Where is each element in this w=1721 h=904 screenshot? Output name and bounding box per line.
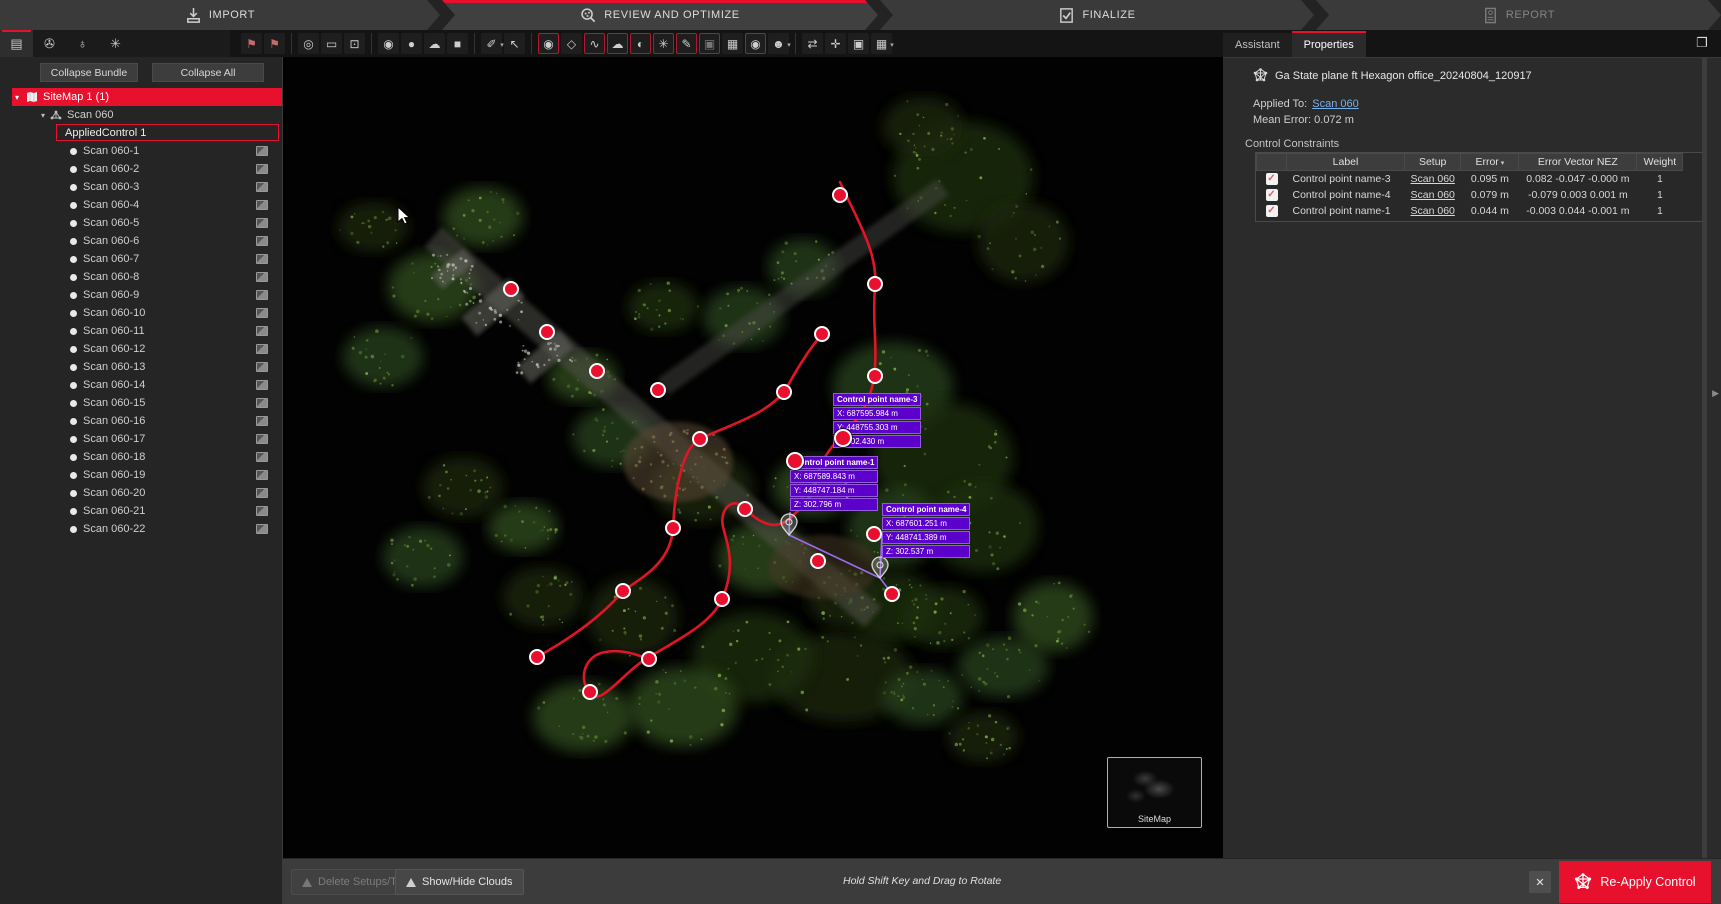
- tree-item-scan[interactable]: Scan 060-9: [12, 286, 282, 304]
- scan-image-icon[interactable]: [256, 524, 268, 534]
- scan-bullet-icon: [70, 328, 77, 335]
- tree-item-label: Scan 060-10: [83, 307, 145, 319]
- constraint-weight: 1: [1637, 187, 1683, 203]
- sitemap-open-icon[interactable]: ⚑: [264, 33, 285, 54]
- tree-item-scan[interactable]: Scan 060-16: [12, 412, 282, 430]
- show-hide-clouds-button[interactable]: Show/Hide Clouds: [395, 869, 524, 895]
- workflow-step-review-optimize[interactable]: REVIEW AND OPTIMIZE: [442, 0, 878, 30]
- zoom-window-icon[interactable]: ⊡: [344, 33, 365, 54]
- constraint-vector: 0.082 -0.047 -0.000 m: [1519, 171, 1637, 187]
- tree-item-label: Scan 060-22: [83, 523, 145, 535]
- scan-bullet-icon: [70, 148, 77, 155]
- rotate-hint-text: Hold Shift Key and Drag to Rotate: [843, 875, 1001, 887]
- control-point-marker: [642, 652, 656, 666]
- dropdown-caret-icon[interactable]: ▾: [887, 41, 897, 49]
- tree-item-scan[interactable]: Scan 060-19: [12, 466, 282, 484]
- tree-item-label: Scan 060-18: [83, 451, 145, 463]
- column-header[interactable]: Weight: [1637, 154, 1683, 171]
- tree-item-scan[interactable]: Scan 060-17: [12, 430, 282, 448]
- control-point-marker: [867, 527, 881, 541]
- tree-item-label: Scan 060-5: [83, 217, 139, 229]
- applied-to-row: Applied To:Scan 060: [1253, 98, 1359, 110]
- control-point-marker[interactable]: [834, 429, 852, 447]
- sitemap-thumbnail[interactable]: SiteMap: [1107, 757, 1202, 828]
- application-window: IMPORT REVIEW AND OPTIMIZE FINALIZE REPO…: [0, 0, 1721, 904]
- constraint-checkbox[interactable]: ✓: [1266, 189, 1278, 201]
- scan-bullet-icon: [70, 202, 77, 209]
- toolbar-group: ✐▾↖: [475, 33, 532, 54]
- scan-image-icon[interactable]: [256, 470, 268, 480]
- scan-bullet-icon: [70, 310, 77, 317]
- label-coord-z: Z: 302.796 m: [790, 498, 878, 511]
- properties-panel: Ga State plane ft Hexagon office_2024080…: [1223, 57, 1721, 858]
- control-point-marker: [651, 383, 665, 397]
- sitemap-create-icon[interactable]: ⚑: [241, 33, 262, 54]
- constraint-weight: 1: [1637, 203, 1683, 219]
- re-apply-control-icon: [1574, 873, 1592, 891]
- scan-bullet-icon: [70, 382, 77, 389]
- tree-item-scan[interactable]: Scan 060-8: [12, 268, 282, 286]
- expand-caret-icon[interactable]: ▾: [12, 93, 22, 102]
- scan-image-icon[interactable]: [256, 398, 268, 408]
- tree-item-label: Scan 060-19: [83, 469, 145, 481]
- collapse-all-button[interactable]: Collapse All: [152, 63, 264, 82]
- tree-item-label: Scan 060-6: [83, 235, 139, 247]
- select-cursor-icon[interactable]: ↖: [504, 33, 525, 54]
- control-point-marker: [540, 325, 554, 339]
- column-header[interactable]: Error ▾: [1461, 154, 1519, 171]
- constraint-checkbox[interactable]: ✓: [1266, 205, 1278, 217]
- cloud-layers-icon[interactable]: ☁: [424, 33, 445, 54]
- user-filter-icon[interactable]: ☻▾: [768, 33, 789, 54]
- project-explorer-tab[interactable]: ▤: [0, 30, 33, 57]
- scan-bullet-icon: [70, 364, 77, 371]
- toolbar-group: ◉◇∿☁◐✳✎▣▦◉☻▾: [532, 33, 796, 54]
- tree-item-label: Scan 060-12: [83, 343, 145, 355]
- mean-error-row: Mean Error: 0.072 m: [1253, 114, 1354, 126]
- constraint-label: Control point name-3: [1287, 171, 1405, 187]
- tree-item-label: Scan 060-2: [83, 163, 139, 175]
- scan-bullet-icon: [70, 436, 77, 443]
- sort-indicator-icon[interactable]: ▾: [1499, 160, 1504, 167]
- viewport-bottom-bar: Delete Setups/Tracks Show/Hide Clouds Ho…: [283, 858, 1721, 904]
- tree-item-label: Scan 060-8: [83, 271, 139, 283]
- plane-view-icon[interactable]: ■: [447, 33, 468, 54]
- workflow-step-finalize[interactable]: FINALIZE: [880, 0, 1314, 30]
- control-point-marker: [504, 282, 518, 296]
- dropdown-caret-icon[interactable]: ▾: [784, 41, 794, 49]
- panel-tab-bar: Assistant Properties ❐: [1223, 30, 1721, 57]
- workflow-step-import[interactable]: IMPORT: [0, 0, 440, 30]
- control-point-marker: [616, 584, 630, 598]
- control-point-marker: [811, 554, 825, 568]
- tree-item-scan[interactable]: Scan 060-12: [12, 340, 282, 358]
- workflow-bar: IMPORT REVIEW AND OPTIMIZE FINALIZE REPO…: [0, 0, 1721, 30]
- tree-item-scan[interactable]: Scan 060-15: [12, 394, 282, 412]
- control-point-marker[interactable]: [786, 452, 804, 470]
- sitemap-icon: [26, 91, 38, 103]
- tree-item-label: Scan 060-3: [83, 181, 139, 193]
- tree-item-scan[interactable]: Scan 060-6: [12, 232, 282, 250]
- control-point-marker: [666, 521, 680, 535]
- applied-to-link[interactable]: Scan 060: [1312, 98, 1358, 110]
- applied-control-selection-box: AppliedControl 1: [56, 124, 279, 141]
- scan-image-icon[interactable]: [256, 308, 268, 318]
- tree-item-scan[interactable]: Scan 060-14: [12, 376, 282, 394]
- constraint-error: 0.044 m: [1461, 203, 1519, 219]
- scan-image-icon[interactable]: [256, 344, 268, 354]
- setup-triangle-icon: [302, 878, 312, 887]
- control-point-marker: [715, 592, 729, 606]
- label-title: Control point name-3: [833, 393, 921, 406]
- label-coord-y: Y: 448741.389 m: [882, 531, 970, 544]
- pin-toggle-icon[interactable]: ◉: [745, 33, 766, 54]
- control-title-row: Ga State plane ft Hexagon office_2024080…: [1253, 68, 1532, 83]
- control-constraints-heading: Control Constraints: [1245, 138, 1339, 150]
- axes-icon[interactable]: ✛: [825, 33, 846, 54]
- constraint-setup-link[interactable]: Scan 060: [1405, 203, 1461, 219]
- tab-assistant[interactable]: Assistant: [1223, 33, 1292, 57]
- constraint-vector: -0.079 0.003 0.001 m: [1519, 187, 1637, 203]
- label-title: Control point name-4: [882, 503, 970, 516]
- workflow-step-label: REVIEW AND OPTIMIZE: [604, 9, 739, 21]
- column-header[interactable]: Setup: [1405, 154, 1461, 171]
- tree-item-scan[interactable]: Scan 060-13: [12, 358, 282, 376]
- toolbar-group: ⇄✛▣▦▾: [796, 33, 898, 54]
- control-point-marker: [885, 587, 899, 601]
- tree-item-label: Scan 060-11: [83, 325, 145, 337]
- control-point-marker: [590, 364, 604, 378]
- label-coord-x: X: 687595.984 m: [833, 407, 921, 420]
- tree-item-label: Scan 060-17: [83, 433, 145, 445]
- control-point-marker: [738, 502, 752, 516]
- mean-error-value: 0.072 m: [1314, 114, 1354, 126]
- finalize-icon: [1058, 7, 1075, 24]
- scan-image-icon[interactable]: [256, 380, 268, 390]
- scan-image-icon[interactable]: [256, 218, 268, 228]
- tree-item-label: Scan 060-14: [83, 379, 145, 391]
- tree-item-scan[interactable]: Scan 060-10: [12, 304, 282, 322]
- control-title: Ga State plane ft Hexagon office_2024080…: [1275, 70, 1532, 82]
- scan-bullet-icon: [70, 490, 77, 497]
- tree-item-scan[interactable]: Scan 060-4: [12, 196, 282, 214]
- control-constraints-table: LabelSetupError ▾Error Vector NEZWeight …: [1256, 153, 1683, 219]
- tree-item-scan[interactable]: Scan 060-18: [12, 448, 282, 466]
- label-coord-y: Y: 448747.184 m: [790, 484, 878, 497]
- scan-bullet-icon: [70, 274, 77, 281]
- scan-bullet-icon: [70, 418, 77, 425]
- workflow-step-label: REPORT: [1506, 9, 1555, 21]
- tree-item-label: Scan 060-15: [83, 397, 145, 409]
- tree-item-scan[interactable]: Scan 060-22: [12, 520, 282, 538]
- control-point-marker: [833, 188, 847, 202]
- column-header[interactable]: Error Vector NEZ: [1519, 154, 1637, 171]
- tab-properties[interactable]: Properties: [1292, 33, 1366, 57]
- geotag-tab[interactable]: ♁: [66, 30, 99, 57]
- orbit-view-icon[interactable]: ◎: [298, 33, 319, 54]
- tree-item-label: Scan 060-7: [83, 253, 139, 265]
- annotation-toggle-icon[interactable]: ✎: [676, 33, 697, 54]
- label-coord-x: X: 687589.843 m: [790, 470, 878, 483]
- constraint-weight: 1: [1637, 171, 1683, 187]
- control-network-icon: [1253, 68, 1268, 83]
- tree-item-scan[interactable]: Scan 060-11: [12, 322, 282, 340]
- track-toggle-icon[interactable]: ∿: [584, 33, 605, 54]
- scan-image-icon[interactable]: [256, 290, 268, 300]
- scan-image-icon[interactable]: [256, 452, 268, 462]
- scan-network-icon: [50, 109, 62, 121]
- tree-item-label: Scan 060-4: [83, 199, 139, 211]
- sitemap-thumbnail-label: SiteMap: [1108, 814, 1201, 824]
- label-coord-z: Z: 302.537 m: [882, 545, 970, 558]
- constraint-label: Control point name-4: [1287, 187, 1405, 203]
- scan-bullet-icon: [70, 508, 77, 515]
- label-coord-x: X: 687601.251 m: [882, 517, 970, 530]
- scan-bullet-icon: [70, 256, 77, 263]
- scan-bullet-icon: [70, 454, 77, 461]
- scan-bullet-icon: [70, 400, 77, 407]
- constraint-row[interactable]: ✓Control point name-3Scan 0600.095 m0.08…: [1257, 171, 1683, 187]
- report-icon: [1482, 7, 1499, 24]
- collapse-bundle-button[interactable]: Collapse Bundle: [40, 63, 138, 82]
- snapshot-icon[interactable]: ▣: [848, 33, 869, 54]
- constraint-checkbox[interactable]: ✓: [1266, 173, 1278, 185]
- control-point-marker: [868, 277, 882, 291]
- attachments-tab[interactable]: ✇: [33, 30, 66, 57]
- scan-image-icon[interactable]: [256, 272, 268, 282]
- tree-item-label: Scan 060-20: [83, 487, 145, 499]
- constraint-setup-link[interactable]: Scan 060: [1405, 171, 1461, 187]
- tree-item-label: Scan 060-1: [83, 145, 139, 157]
- workflow-step-report[interactable]: REPORT: [1316, 0, 1721, 30]
- import-icon: [185, 7, 202, 24]
- tree-item-scan[interactable]: Scan 060-3: [12, 178, 282, 196]
- scan-image-icon[interactable]: [256, 434, 268, 444]
- sphere-view-icon[interactable]: ●: [401, 33, 422, 54]
- tree-item-scan[interactable]: Scan 060-7: [12, 250, 282, 268]
- toolbar-group: ◎▭⊡: [292, 33, 372, 54]
- scan-image-icon[interactable]: [256, 488, 268, 498]
- control-point-marker: [815, 327, 829, 341]
- scan-image-icon[interactable]: [256, 200, 268, 210]
- tree-item-label: Scan 060-16: [83, 415, 145, 427]
- close-bar-icon[interactable]: ✕: [1529, 871, 1551, 893]
- scan-image-icon[interactable]: [256, 254, 268, 264]
- tree-item-label: Scan 060-13: [83, 361, 145, 373]
- control-point-marker: [868, 369, 882, 383]
- constraint-setup-link[interactable]: Scan 060: [1405, 187, 1461, 203]
- scan-image-icon[interactable]: [256, 182, 268, 192]
- toolbar-group: ◉●☁■: [372, 33, 475, 54]
- scan-image-icon[interactable]: [256, 362, 268, 372]
- tree-item-applied-control[interactable]: AppliedControl 1: [12, 124, 282, 142]
- control-point-marker: [530, 650, 544, 664]
- constraint-label: Control point name-1: [1287, 203, 1405, 219]
- tree-item-scan[interactable]: Scan 060-21: [12, 502, 282, 520]
- scan-image-icon[interactable]: [256, 146, 268, 156]
- scan-image-icon[interactable]: [256, 326, 268, 336]
- grid-select-icon[interactable]: ▦▾: [871, 33, 892, 54]
- swap-icon[interactable]: ⇄: [802, 33, 823, 54]
- column-header[interactable]: [1257, 154, 1287, 171]
- control-network-toggle-icon[interactable]: ✳: [653, 33, 674, 54]
- tree-item-scan-group[interactable]: ▾Scan 060: [12, 106, 282, 124]
- setup-points-toggle-icon[interactable]: ◉: [538, 33, 559, 54]
- scan-bullet-icon: [70, 472, 77, 479]
- control-point-label[interactable]: Control point name-4X: 687601.251 mY: 44…: [882, 503, 970, 559]
- tree-item-label: Scan 060-21: [83, 505, 145, 517]
- constraint-error: 0.079 m: [1461, 187, 1519, 203]
- expand-caret-icon[interactable]: ▾: [38, 111, 48, 120]
- control-point-marker: [693, 432, 707, 446]
- camera-toggle-icon[interactable]: ▦: [722, 33, 743, 54]
- control-point-marker: [777, 385, 791, 399]
- scan-bullet-icon: [70, 238, 77, 245]
- control-point-marker: [583, 685, 597, 699]
- tree-item-label: Scan 060-9: [83, 289, 139, 301]
- active-step-indicator: [442, 0, 878, 3]
- workflow-step-label: FINALIZE: [1082, 9, 1135, 21]
- main-toolbar: ⚑⚑◎▭⊡◉●☁■✐▾↖◉◇∿☁◐✳✎▣▦◉☻▾⇄✛▣▦▾: [230, 30, 898, 57]
- tree-item-sitemap-root[interactable]: ▾SiteMap 1 (1): [12, 88, 282, 106]
- scan-image-icon[interactable]: [256, 164, 268, 174]
- scan-image-icon[interactable]: [256, 416, 268, 426]
- point-cloud-scene: [283, 57, 1223, 858]
- undock-panel-icon[interactable]: ❐: [1691, 33, 1713, 53]
- scan-image-icon[interactable]: [256, 506, 268, 516]
- control-constraints-table-container: LabelSetupError ▾Error Vector NEZWeight …: [1255, 152, 1703, 222]
- multi-sphere-icon[interactable]: ◉: [378, 33, 399, 54]
- re-apply-control-button[interactable]: Re-Apply Control: [1559, 861, 1711, 903]
- project-tree: ▾SiteMap 1 (1)▾Scan 060AppliedControl 1S…: [12, 88, 282, 538]
- scan-bullet-icon: [70, 346, 77, 353]
- tree-item-scan[interactable]: Scan 060-2: [12, 160, 282, 178]
- point-cloud-viewport[interactable]: Control point name-3X: 687595.984 mY: 44…: [283, 57, 1223, 858]
- review-optimize-icon: [580, 7, 597, 24]
- scan-image-icon[interactable]: [256, 236, 268, 246]
- column-header[interactable]: Label: [1287, 154, 1405, 171]
- measure-icon[interactable]: ✐▾: [481, 33, 502, 54]
- cloud-triangle-icon: [406, 878, 416, 887]
- tag-toggle-icon[interactable]: ◇: [561, 33, 582, 54]
- scan-bullet-icon: [70, 292, 77, 299]
- cloud-toggle-icon[interactable]: ☁: [607, 33, 628, 54]
- constraint-row[interactable]: ✓Control point name-4Scan 0600.079 m-0.0…: [1257, 187, 1683, 203]
- sphere-split-toggle-icon[interactable]: ◐: [630, 33, 651, 54]
- scan-bullet-icon: [70, 220, 77, 227]
- panel-scrollbar[interactable]: [1702, 58, 1707, 858]
- tree-item-scan[interactable]: Scan 060-5: [12, 214, 282, 232]
- toolbar-group: ⚑⚑: [235, 33, 292, 54]
- tree-item-scan[interactable]: Scan 060-20: [12, 484, 282, 502]
- workflow-step-label: IMPORT: [209, 9, 255, 21]
- tree-item-scan[interactable]: Scan 060-1: [12, 142, 282, 160]
- image-toggle-icon[interactable]: ▣: [699, 33, 720, 54]
- expand-panel-arrow-icon[interactable]: ▶: [1712, 388, 1719, 399]
- scan-bullet-icon: [70, 526, 77, 533]
- bundle-network-tab[interactable]: ✳: [99, 30, 132, 57]
- scan-bullet-icon: [70, 166, 77, 173]
- tree-item-label: Scan 060: [67, 109, 113, 121]
- scan-bullet-icon: [70, 184, 77, 191]
- constraint-vector: -0.003 0.044 -0.001 m: [1519, 203, 1637, 219]
- constraint-row[interactable]: ✓Control point name-1Scan 0600.044 m-0.0…: [1257, 203, 1683, 219]
- project-sidebar: Collapse Bundle Collapse All ▾SiteMap 1 …: [0, 57, 283, 904]
- constraint-error: 0.095 m: [1461, 171, 1519, 187]
- frame-view-icon[interactable]: ▭: [321, 33, 342, 54]
- sidebar-tab-bar: ▤✇♁✳: [0, 30, 230, 57]
- tree-item-label: SiteMap 1 (1): [43, 91, 109, 103]
